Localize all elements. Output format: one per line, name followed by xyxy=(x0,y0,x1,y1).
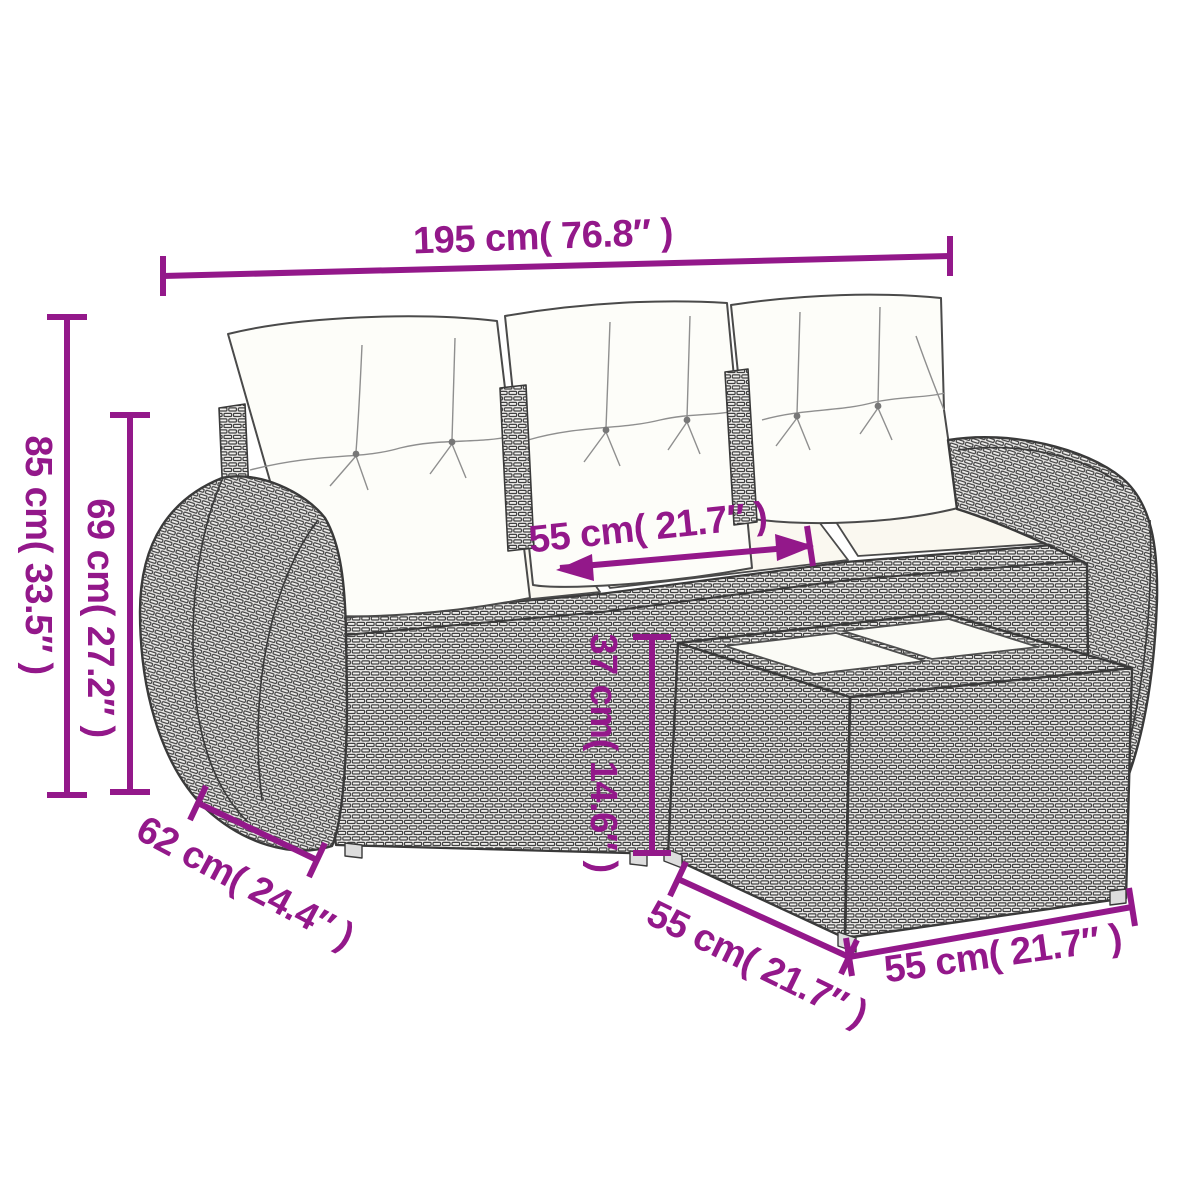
back-pillow-3 xyxy=(731,295,958,523)
furniture-illustration xyxy=(0,0,1200,1200)
dim-label-backrest-height: 69 cm( 27.2″ ) xyxy=(81,498,119,737)
table-right-face xyxy=(845,668,1132,938)
dim-label-total-width: 195 cm( 76.8″ ) xyxy=(412,213,673,260)
dim-label-total-height: 85 cm( 33.5″ ) xyxy=(19,435,57,674)
footstool-table xyxy=(664,613,1132,952)
dim-label-table-height: 37 cm( 14.6″ ) xyxy=(584,633,622,872)
product-dimension-diagram: 195 cm( 76.8″ ) 85 cm( 33.5″ ) 69 cm( 27… xyxy=(0,0,1200,1200)
left-armrest xyxy=(140,476,347,850)
